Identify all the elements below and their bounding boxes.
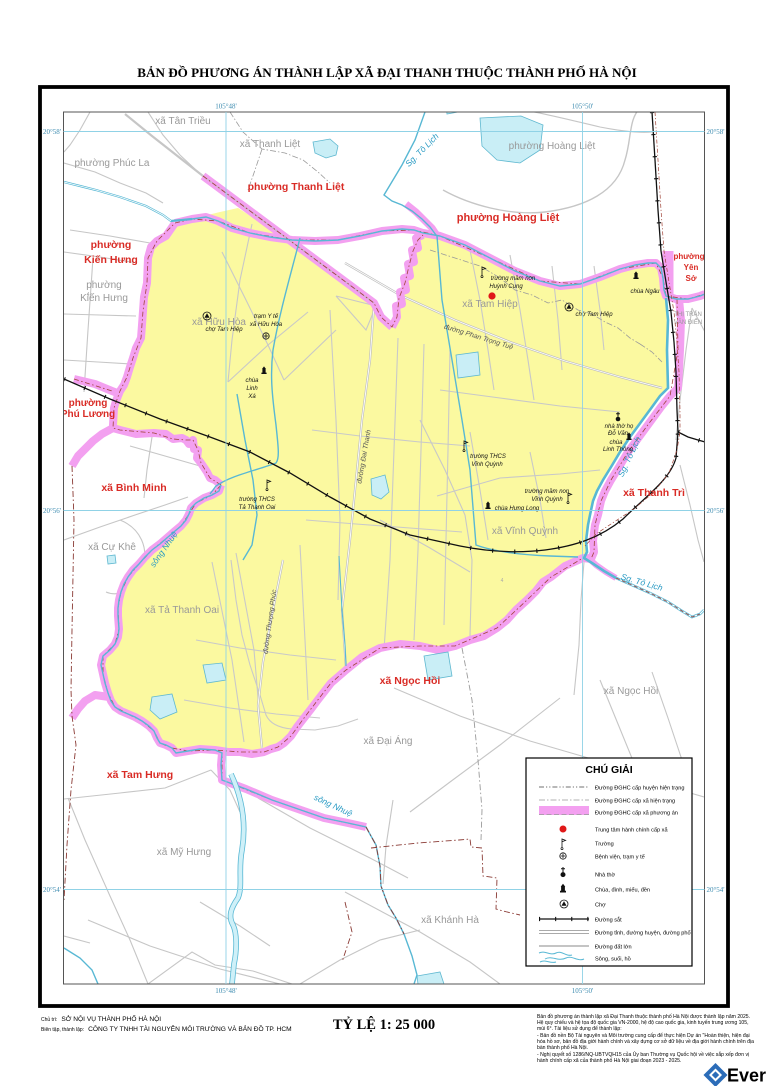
svg-text:Đường đất lớn: Đường đất lớn (595, 945, 632, 951)
svg-text:hóa hồ sơ, bản đồ địa giới hàn: hóa hồ sơ, bản đồ địa giới hành chính và… (537, 1038, 754, 1045)
svg-text:phường: phường (91, 239, 132, 251)
svg-text:xã Thanh Trì: xã Thanh Trì (623, 487, 685, 499)
svg-text:xã Đại Áng: xã Đại Áng (364, 734, 413, 747)
svg-text:Trường: Trường (595, 842, 614, 848)
svg-text:THỊ TRẤN: THỊ TRẤN (674, 311, 702, 318)
svg-text:Trung tâm hành chính cấp xã: Trung tâm hành chính cấp xã (595, 828, 668, 834)
svg-text:Ever: Ever (727, 1066, 766, 1086)
svg-text:20°58': 20°58' (707, 128, 725, 136)
svg-text:phường Phúc La: phường Phúc La (75, 158, 150, 169)
svg-text:trường THCS: trường THCS (239, 497, 275, 503)
svg-text:- Bản đồ nền Bộ Tài nguyên và: - Bản đồ nền Bộ Tài nguyên và Môi trường… (537, 1032, 750, 1039)
svg-text:105°48': 105°48' (215, 103, 237, 111)
svg-text:Huỳnh Cung: Huỳnh Cung (489, 284, 523, 290)
svg-text:phường: phường (69, 398, 108, 409)
svg-text:105°48': 105°48' (215, 987, 237, 995)
svg-text:xã Tam Hiệp: xã Tam Hiệp (462, 299, 518, 310)
svg-text:Nhà thờ: Nhà thờ (595, 873, 615, 879)
svg-text:Đỗ Văn: Đỗ Văn (608, 430, 629, 437)
svg-text:Linh Thông: Linh Thông (603, 447, 634, 453)
svg-text:Xá: Xá (247, 394, 256, 400)
svg-text:Sông, suối, hồ: Sông, suối, hồ (595, 957, 631, 963)
svg-text:BẢN ĐỒ PHƯƠNG ÁN THÀNH LẬP XÃ: BẢN ĐỒ PHƯƠNG ÁN THÀNH LẬP XÃ ĐẠI THANH … (137, 65, 636, 80)
svg-text:VĂN ĐIỂN: VĂN ĐIỂN (674, 319, 702, 326)
svg-text:phường: phường (86, 280, 122, 291)
svg-text:Vĩnh Quỳnh: Vĩnh Quỳnh (531, 497, 563, 503)
svg-text:phường Hoàng Liệt: phường Hoàng Liệt (457, 212, 560, 224)
svg-text:múi 6°. Tài liệu sử dụng để th: múi 6°. Tài liệu sử dụng để thành lập: (537, 1025, 622, 1032)
svg-text:xã Vĩnh Quỳnh: xã Vĩnh Quỳnh (492, 526, 558, 537)
svg-text:chùa: chùa (609, 440, 623, 446)
svg-text:Chùa, đình, miếu, đền: Chùa, đình, miếu, đền (595, 888, 650, 894)
svg-text:105°50': 105°50' (572, 987, 594, 995)
svg-text:phường Thanh Liệt: phường Thanh Liệt (248, 181, 345, 193)
svg-text:xã Thanh Liệt: xã Thanh Liệt (240, 139, 301, 150)
svg-text:bàn thành phố Hà Nội.: bàn thành phố Hà Nội. (537, 1045, 588, 1051)
svg-text:chùa: chùa (245, 378, 259, 384)
svg-text:Vĩnh Quỳnh: Vĩnh Quỳnh (471, 462, 503, 468)
svg-text:Đường ĐGHC cấp xã hiện trạng: Đường ĐGHC cấp xã hiện trạng (595, 799, 675, 805)
svg-text:chùa Hưng Long: chùa Hưng Long (495, 506, 540, 512)
svg-text:chùa Ngâu: chùa Ngâu (630, 289, 660, 295)
svg-text:chợ Tam Hiệp: chợ Tam Hiệp (205, 327, 243, 333)
svg-text:Linh: Linh (246, 386, 258, 392)
svg-text:Đường ĐGHC cấp xã phương án: Đường ĐGHC cấp xã phương án (595, 811, 678, 817)
svg-text:Kiến Hưng: Kiến Hưng (84, 254, 138, 266)
svg-text:105°50': 105°50' (572, 103, 594, 111)
svg-text:Đường tỉnh, đường huyện, đường: Đường tỉnh, đường huyện, đường phố (595, 930, 691, 937)
svg-text:Đường ĐGHC cấp huyện hiện trạn: Đường ĐGHC cấp huyện hiện trạng (595, 786, 685, 792)
svg-text:hành chính cấp xã của thành ph: hành chính cấp xã của thành phố Hà Nội g… (537, 1057, 681, 1064)
svg-text:20°56': 20°56' (43, 507, 61, 515)
svg-text:4: 4 (501, 578, 504, 584)
svg-text:Tả Thanh Oai: Tả Thanh Oai (239, 504, 276, 511)
svg-text:Bệnh viện, trạm y tế: Bệnh viện, trạm y tế (595, 855, 646, 861)
svg-text:xã Ngọc Hồi: xã Ngọc Hồi (604, 685, 658, 697)
svg-text:phường: phường (673, 252, 704, 261)
svg-text:xã Tả Thanh Oai: xã Tả Thanh Oai (145, 605, 219, 616)
svg-text:xã Ngọc Hồi: xã Ngọc Hồi (380, 675, 441, 687)
svg-text:xã Cự Khê: xã Cự Khê (88, 542, 136, 553)
svg-text:Chợ: Chợ (595, 903, 606, 909)
svg-text:trạm Y tế: trạm Y tế (254, 313, 279, 320)
svg-text:TỶ LỆ 1: 25 000: TỶ LỆ 1: 25 000 (333, 1016, 435, 1033)
svg-text:Phú Lương: Phú Lương (61, 409, 115, 420)
svg-text:xã Hữu Hòa: xã Hữu Hòa (249, 322, 283, 328)
svg-text:20°54': 20°54' (43, 886, 61, 894)
svg-text:trường mầm non: trường mầm non (525, 489, 570, 495)
svg-text:trường mầm non: trường mầm non (491, 276, 536, 282)
svg-text:xã Khánh Hà: xã Khánh Hà (421, 915, 479, 926)
svg-text:20°54': 20°54' (707, 886, 725, 894)
svg-text:- Nghị quyết số 1286/NQ-UBTVQH: - Nghị quyết số 1286/NQ-UBTVQH15 của Ủy … (537, 1051, 749, 1058)
svg-text:xã Mỹ Hưng: xã Mỹ Hưng (157, 847, 212, 858)
svg-text:20°56': 20°56' (707, 507, 725, 515)
svg-text:20°58': 20°58' (43, 128, 61, 136)
svg-text:Sở: Sở (685, 274, 696, 283)
svg-text:trường THCS: trường THCS (470, 454, 506, 460)
svg-text:xã Tam Hưng: xã Tam Hưng (107, 769, 173, 781)
svg-text:xã Bình Minh: xã Bình Minh (101, 482, 166, 494)
svg-text:4: 4 (87, 292, 90, 298)
svg-text:CHÚ GIẢI: CHÚ GIẢI (585, 763, 632, 776)
svg-text:xã Tân Triều: xã Tân Triều (155, 115, 210, 127)
svg-text:Yên: Yên (684, 263, 699, 272)
svg-text:chợ Tam Hiệp: chợ Tam Hiệp (575, 312, 613, 318)
svg-text:Đường sắt: Đường sắt (595, 917, 622, 924)
svg-text:nhà thờ họ: nhà thờ họ (605, 424, 634, 430)
